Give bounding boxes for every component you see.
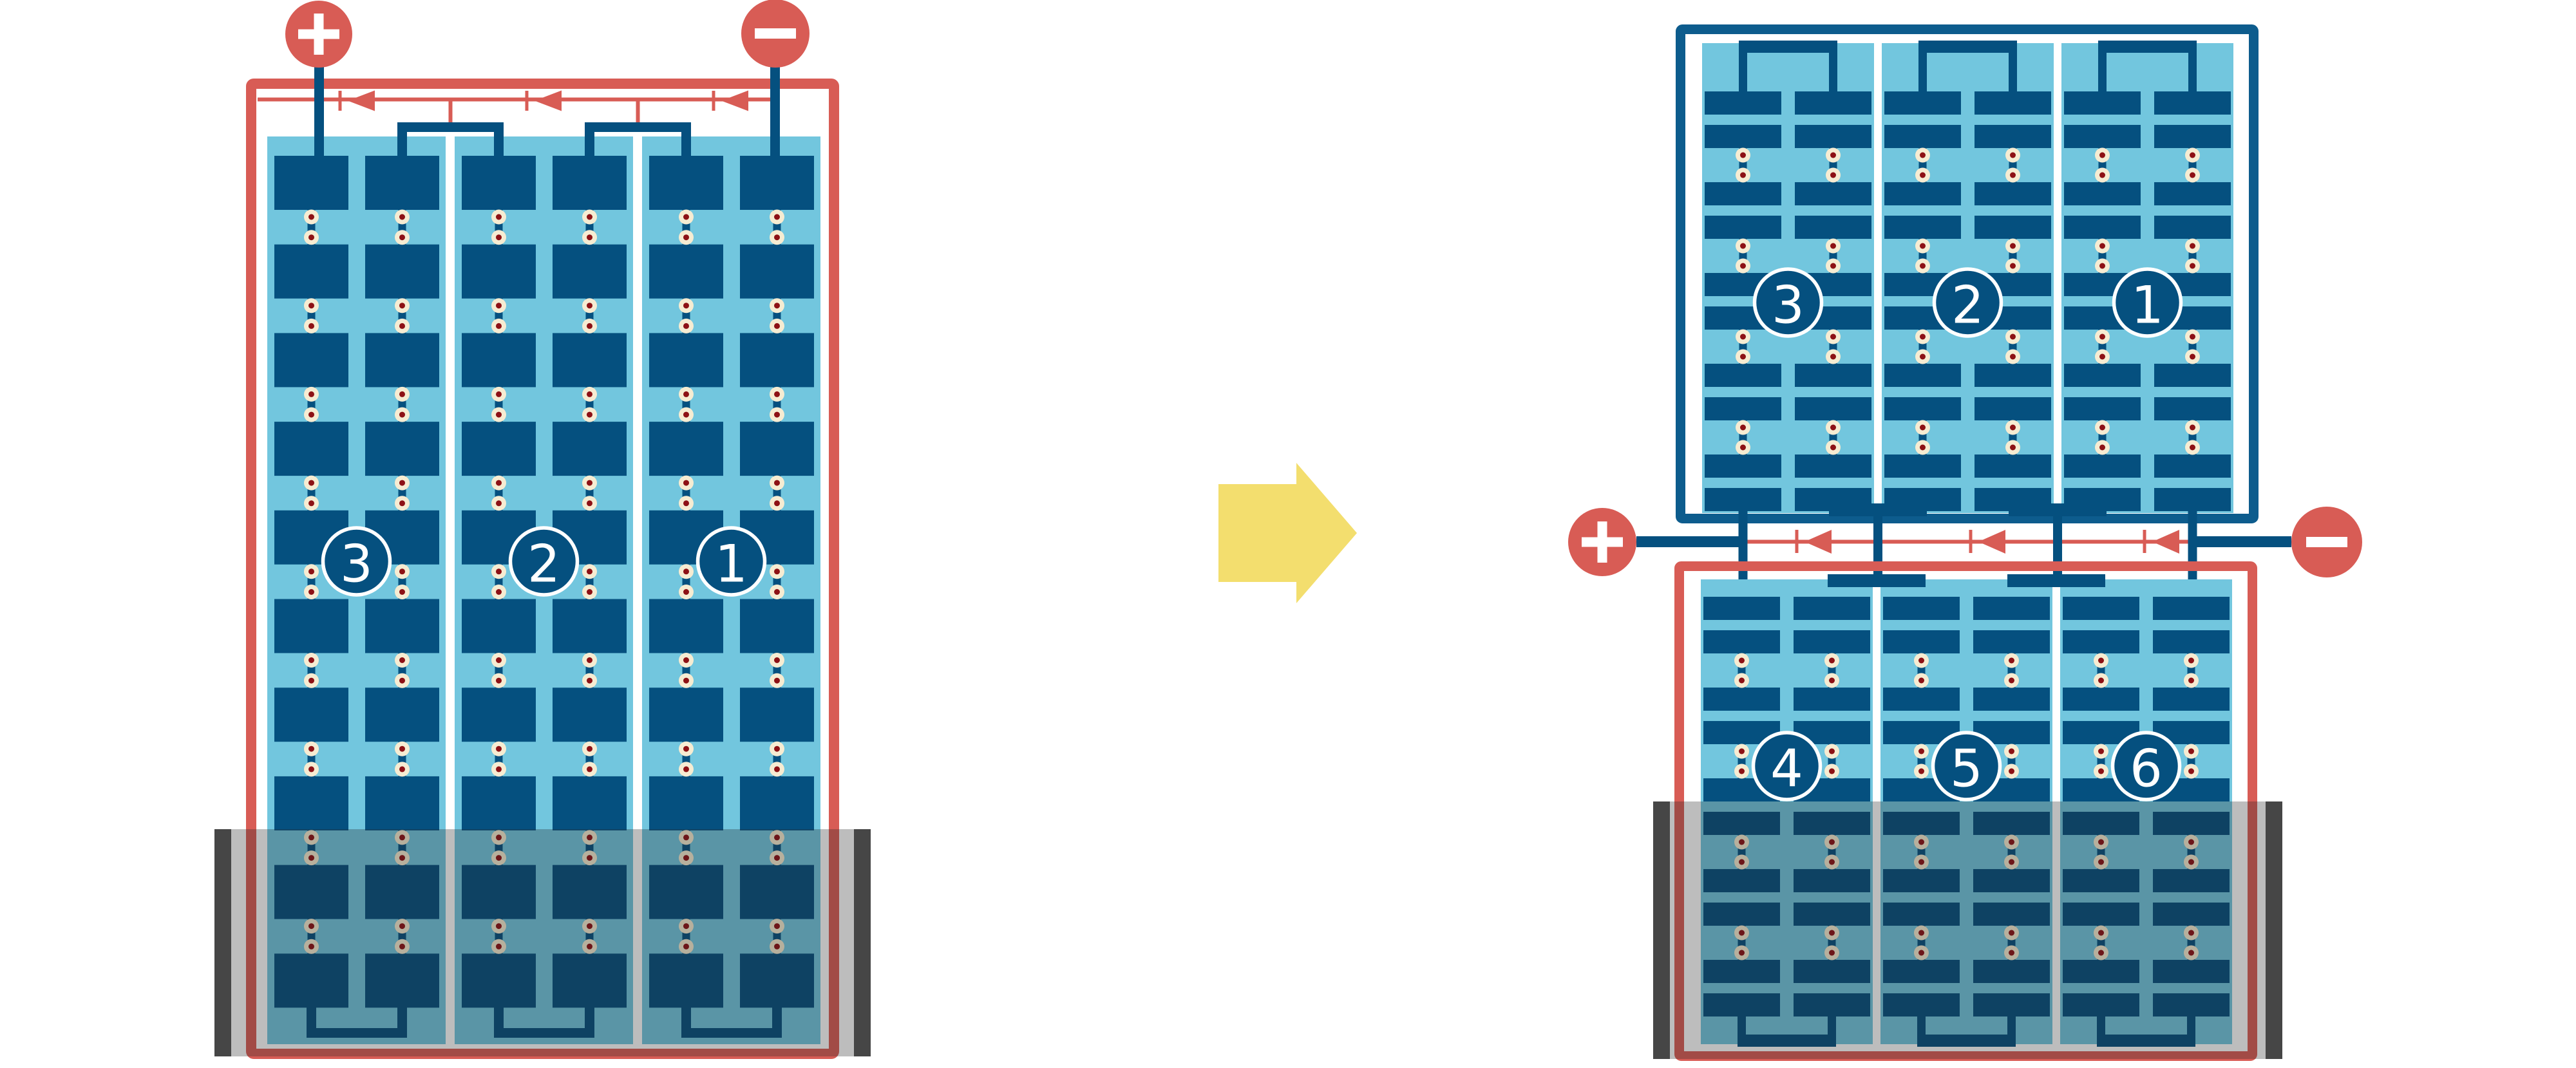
solar-half-cell	[1794, 688, 1870, 711]
cell-dot-center	[1920, 153, 1926, 158]
solar-half-cell	[2153, 630, 2230, 653]
cell-dot-center	[1739, 769, 1745, 774]
cell-dot-center	[1740, 263, 1746, 269]
cell-dot-center	[308, 500, 314, 506]
terminal-stem	[314, 64, 324, 156]
cell-dot-center	[1920, 354, 1926, 360]
solar-half-cell	[1794, 630, 1870, 653]
string-label: 5	[1950, 739, 1983, 799]
string-label: 1	[715, 534, 748, 594]
cell-dot-center	[774, 214, 780, 220]
cell-dot-center	[1829, 769, 1835, 774]
cell-dot-center	[308, 303, 314, 308]
cell-dot-center	[2099, 263, 2105, 269]
cell-dot-center	[399, 678, 405, 684]
solar-cell	[649, 156, 723, 210]
cell-dot-center	[2010, 425, 2016, 431]
solar-half-cell	[1705, 216, 1781, 239]
cell-dot-center	[1830, 425, 1836, 431]
solar-cell	[365, 422, 439, 476]
cell-dot-center	[2190, 425, 2195, 431]
cell-dot-center	[587, 303, 592, 308]
cell-dot-center	[683, 589, 689, 595]
cell-dot-center	[774, 746, 780, 752]
cell-dot-center	[2009, 658, 2014, 664]
cell-dot-center	[683, 678, 689, 684]
cell-dot-center	[774, 766, 780, 772]
cell-dot-center	[683, 391, 689, 397]
interconnect-leg	[1739, 53, 1747, 91]
solar-half-cell	[1795, 364, 1871, 387]
cell-dot-center	[399, 303, 405, 308]
terminal-negative	[2291, 507, 2362, 577]
cell-dot-center	[2098, 658, 2104, 664]
cell-dot-center	[1918, 658, 1924, 664]
solar-cell	[274, 599, 348, 653]
right-top-module: 321	[1681, 30, 2254, 519]
cell-dot-center	[399, 500, 405, 506]
string-label: 2	[1951, 276, 1984, 335]
cell-dot-center	[308, 480, 314, 486]
string-number-badge: 3	[1755, 269, 1822, 336]
interconnect-leg	[2009, 53, 2017, 91]
cell-dot-center	[587, 480, 592, 486]
string-number-badge: 2	[1935, 269, 2002, 336]
string-number-badge: 4	[1754, 733, 1821, 800]
interconnect-bar	[2098, 41, 2197, 53]
cell-dot-center	[1830, 445, 1836, 451]
solar-half-cell	[1975, 182, 2051, 205]
cell-dot-center	[308, 412, 314, 418]
cell-dot-center	[1920, 425, 1926, 431]
cell-dot-center	[308, 766, 314, 772]
solar-half-cell	[2064, 125, 2141, 148]
cell-dot-center	[1829, 749, 1835, 754]
diode-cathode-bar	[1969, 530, 1973, 553]
interconnect-bar	[1918, 41, 2017, 53]
solar-cell	[274, 776, 348, 830]
interconnect-bar	[2007, 574, 2105, 587]
cell-dot-center	[308, 657, 314, 663]
cell-dot-center	[774, 412, 780, 418]
solar-cell	[649, 245, 723, 299]
cell-dot-center	[399, 589, 405, 595]
cell-dot-center	[2190, 153, 2195, 158]
string-number-badge: 6	[2113, 733, 2180, 800]
solar-half-cell	[2063, 597, 2139, 620]
cell-dot-center	[308, 746, 314, 752]
solar-cell	[462, 422, 536, 476]
cell-dot-center	[496, 412, 502, 418]
cell-dot-center	[774, 234, 780, 240]
solar-half-cell	[1883, 688, 1960, 711]
solar-half-cell	[1975, 364, 2051, 387]
solar-half-cell	[1703, 630, 1780, 653]
interconnect-leg	[494, 132, 504, 156]
cell-dot-center	[587, 214, 592, 220]
cell-dot-center	[2188, 678, 2194, 684]
solar-half-cell	[2154, 125, 2231, 148]
solar-half-cell	[1975, 397, 2051, 420]
cell-dot-center	[2098, 749, 2104, 754]
solar-half-cell	[1975, 216, 2051, 239]
cell-dot-center	[1918, 769, 1924, 774]
solar-cell	[553, 688, 627, 742]
solar-cell	[649, 688, 723, 742]
cell-dot-center	[1740, 354, 1746, 360]
cell-dot-center	[2190, 334, 2195, 340]
string-label: 3	[340, 534, 373, 594]
minus-icon	[755, 28, 796, 39]
cell-dot-center	[774, 589, 780, 595]
cell-dot-center	[2098, 769, 2104, 774]
solar-cell	[274, 688, 348, 742]
solar-half-cell	[1975, 125, 2051, 148]
cell-dot-center	[683, 303, 689, 308]
solar-cell	[365, 776, 439, 830]
interconnect-bar	[1739, 41, 1837, 53]
solar-cell	[462, 333, 536, 387]
solar-cell	[365, 599, 439, 653]
cell-dot-center	[1920, 445, 1926, 451]
cell-dot-center	[496, 323, 502, 329]
cell-dot-center	[683, 480, 689, 486]
solar-half-cell	[1975, 454, 2051, 478]
string-number-badge: 3	[323, 528, 390, 595]
solar-half-cell	[1884, 397, 1961, 420]
solar-cell	[740, 333, 814, 387]
solar-half-cell	[1973, 630, 2050, 653]
solar-cell	[740, 599, 814, 653]
cell-dot-center	[587, 568, 592, 574]
cell-dot-center	[1739, 678, 1745, 684]
cell-dot-center	[496, 480, 502, 486]
string-label: 1	[2131, 276, 2164, 335]
solar-half-cell	[1883, 630, 1960, 653]
cell-dot-center	[1739, 658, 1745, 664]
cell-dot-center	[308, 391, 314, 397]
solar-cell	[740, 776, 814, 830]
string-label: 6	[2130, 739, 2163, 799]
diode-triangle	[535, 91, 562, 111]
cell-dot-center	[496, 589, 502, 595]
cell-dot-center	[1740, 445, 1746, 451]
cell-dot-center	[2190, 354, 2195, 360]
solar-half-cell	[1973, 688, 2050, 711]
shade-overlay-left	[214, 829, 871, 1056]
solar-cell	[462, 776, 536, 830]
solar-cell	[740, 156, 814, 210]
cell-dot-center	[496, 214, 502, 220]
solar-half-cell	[1795, 216, 1871, 239]
cell-dot-center	[2099, 354, 2105, 360]
solar-half-cell	[1795, 125, 1871, 148]
solar-half-cell	[1705, 91, 1781, 115]
diode-cathode-bar	[1795, 530, 1799, 553]
cell-dot-center	[774, 391, 780, 397]
solar-half-cell	[1703, 597, 1780, 620]
cell-dot-center	[683, 323, 689, 329]
string-number-badge: 1	[2114, 269, 2181, 336]
cell-dot-center	[1830, 243, 1836, 249]
cell-dot-center	[1740, 243, 1746, 249]
cell-dot-center	[1918, 678, 1924, 684]
solar-half-cell	[1884, 91, 1961, 115]
cell-dot-center	[1830, 173, 1836, 178]
cell-dot-center	[1830, 263, 1836, 269]
cell-dot-center	[774, 480, 780, 486]
cell-dot-center	[683, 412, 689, 418]
plus-bar-v	[314, 14, 324, 55]
shade-overlay-right	[1653, 801, 2282, 1059]
solar-half-cell	[2064, 364, 2141, 387]
cell-dot-center	[2190, 173, 2195, 178]
cell-dot-center	[399, 412, 405, 418]
solar-half-cell	[1705, 182, 1781, 205]
solar-cell	[649, 599, 723, 653]
diode-cathode-bar	[712, 91, 715, 111]
cell-dot-center	[587, 234, 592, 240]
diode-cathode-bar	[339, 91, 342, 111]
solar-cell	[649, 422, 723, 476]
solar-half-cell	[2154, 454, 2231, 478]
solar-half-cell	[2153, 688, 2230, 711]
cell-dot-center	[496, 766, 502, 772]
shade-overlay	[214, 829, 871, 1056]
interconnect-leg	[1918, 53, 1927, 91]
cell-dot-center	[399, 657, 405, 663]
solar-cell	[740, 688, 814, 742]
cell-dot-center	[587, 412, 592, 418]
diode-triangle	[348, 91, 375, 111]
cell-dot-center	[1920, 334, 1926, 340]
cell-dot-center	[1740, 173, 1746, 178]
cell-dot-center	[1740, 153, 1746, 158]
cell-dot-center	[496, 746, 502, 752]
cell-dot-center	[2010, 263, 2016, 269]
solar-half-cell	[1705, 125, 1781, 148]
cell-dot-center	[2010, 445, 2016, 451]
minus-bar	[755, 28, 796, 39]
cell-dot-center	[587, 500, 592, 506]
solar-cell	[274, 422, 348, 476]
solar-half-cell	[1973, 597, 2050, 620]
cell-dot-center	[496, 391, 502, 397]
cell-dot-center	[2099, 153, 2105, 158]
string-label: 3	[1772, 276, 1804, 335]
cell-dot-center	[2188, 769, 2194, 774]
diode-tap	[636, 100, 640, 123]
cell-dot-center	[587, 391, 592, 397]
cell-dot-center	[2188, 749, 2194, 754]
string-label: 4	[1770, 739, 1803, 799]
solar-cell	[365, 333, 439, 387]
solar-half-cell	[1795, 397, 1871, 420]
cell-dot-center	[308, 323, 314, 329]
solar-half-cell	[1794, 597, 1870, 620]
solar-cell	[553, 599, 627, 653]
solar-cell	[553, 156, 627, 210]
interconnect-leg	[681, 132, 691, 156]
solar-half-cell	[1795, 91, 1871, 115]
minus-icon	[2306, 537, 2347, 547]
solar-half-cell	[2063, 630, 2139, 653]
solar-cell	[649, 333, 723, 387]
terminal-positive	[1568, 508, 1636, 576]
solar-cell	[553, 422, 627, 476]
solar-half-cell	[1883, 597, 1960, 620]
cell-dot-center	[399, 391, 405, 397]
interconnect-leg	[397, 132, 407, 156]
cell-dot-center	[1740, 425, 1746, 431]
cell-dot-center	[496, 568, 502, 574]
interconnect-leg	[2188, 53, 2197, 91]
terminal-positive	[285, 1, 352, 68]
interconnect-leg	[1829, 53, 1837, 91]
solar-cell	[462, 156, 536, 210]
solar-half-cell	[2154, 182, 2231, 205]
cell-dot-center	[1920, 243, 1926, 249]
cell-dot-center	[2099, 425, 2105, 431]
cell-dot-center	[308, 214, 314, 220]
solar-cell	[462, 245, 536, 299]
interconnect-bar	[1828, 574, 1926, 587]
diode-triangle	[1804, 530, 1832, 554]
solar-half-cell	[1795, 182, 1871, 205]
solar-half-cell	[2064, 216, 2141, 239]
string-number-badge: 5	[1933, 733, 2000, 800]
cell-dot-center	[308, 234, 314, 240]
terminal-stem	[770, 64, 780, 156]
cell-dot-center	[2190, 243, 2195, 249]
solar-cell	[462, 688, 536, 742]
cell-dot-center	[683, 746, 689, 752]
cell-dot-center	[587, 323, 592, 329]
solar-half-cell	[2064, 182, 2141, 205]
cell-dot-center	[1740, 334, 1746, 340]
solar-cell	[274, 245, 348, 299]
diode-cathode-bar	[2143, 530, 2146, 553]
cell-dot-center	[683, 568, 689, 574]
string-number-badge: 1	[698, 528, 765, 595]
diagram-svg: 321 321 456	[0, 0, 2576, 1068]
cell-dot-center	[587, 678, 592, 684]
cell-dot-center	[308, 678, 314, 684]
solar-half-cell	[2064, 454, 2141, 478]
solar-half-cell	[2154, 364, 2231, 387]
cell-dot-center	[2009, 749, 2014, 754]
solar-cell	[365, 688, 439, 742]
string-label: 2	[527, 534, 560, 594]
cell-dot-center	[2190, 263, 2195, 269]
cell-dot-center	[774, 303, 780, 308]
cell-dot-center	[1830, 153, 1836, 158]
plus-bar-v	[1598, 521, 1607, 563]
solar-cell	[274, 333, 348, 387]
cell-dot-center	[774, 657, 780, 663]
cell-dot-center	[496, 678, 502, 684]
arrow-right-icon	[1218, 463, 1357, 603]
solar-half-cell	[1705, 364, 1781, 387]
solar-half-cell	[2063, 688, 2139, 711]
solar-half-cell	[2154, 397, 2231, 420]
solar-half-cell	[1884, 216, 1961, 239]
interconnect-bar	[585, 122, 691, 132]
cell-dot-center	[587, 657, 592, 663]
solar-cell	[649, 776, 723, 830]
cell-dot-center	[496, 303, 502, 308]
solar-half-cell	[1795, 454, 1871, 478]
solar-half-cell	[1884, 125, 1961, 148]
cell-dot-center	[399, 766, 405, 772]
cell-dot-center	[496, 500, 502, 506]
cell-dot-center	[683, 214, 689, 220]
interconnect-bar	[397, 122, 504, 132]
minus-bar	[2306, 537, 2347, 547]
cell-dot-center	[2188, 658, 2194, 664]
cell-dot-center	[496, 234, 502, 240]
cell-dot-center	[2010, 173, 2016, 178]
cell-dot-center	[2190, 445, 2195, 451]
solar-half-cell	[2153, 597, 2230, 620]
cell-dot-center	[683, 766, 689, 772]
cell-dot-center	[2010, 334, 2016, 340]
cell-dot-center	[2099, 243, 2105, 249]
solar-cell	[740, 422, 814, 476]
cell-dot-center	[399, 234, 405, 240]
cell-dot-center	[774, 323, 780, 329]
cell-dot-center	[587, 766, 592, 772]
shade-overlay	[1653, 801, 2282, 1059]
cell-dot-center	[399, 568, 405, 574]
solar-half-cell	[2064, 397, 2141, 420]
cell-dot-center	[683, 500, 689, 506]
cell-dot-center	[683, 657, 689, 663]
solar-half-cell	[1705, 454, 1781, 478]
cell-dot-center	[399, 214, 405, 220]
solar-cell	[553, 245, 627, 299]
cell-dot-center	[496, 657, 502, 663]
cell-dot-center	[774, 568, 780, 574]
cell-dot-center	[1829, 678, 1835, 684]
cell-dot-center	[399, 323, 405, 329]
interconnect-leg	[2098, 53, 2107, 91]
solar-half-cell	[1705, 397, 1781, 420]
solar-half-cell	[1884, 182, 1961, 205]
half-cut-module-diagram: 321 321 456	[0, 0, 2576, 1068]
cell-dot-center	[2098, 678, 2104, 684]
cell-dot-center	[587, 746, 592, 752]
diode-cathode-bar	[526, 91, 529, 111]
diode-triangle	[2152, 530, 2179, 554]
solar-cell	[365, 156, 439, 210]
terminal-lead	[1636, 536, 1739, 547]
cell-dot-center	[308, 589, 314, 595]
cell-dot-center	[1830, 354, 1836, 360]
cell-dot-center	[308, 568, 314, 574]
cell-dot-center	[1918, 749, 1924, 754]
cell-dot-center	[774, 500, 780, 506]
cell-dot-center	[1830, 334, 1836, 340]
diode-tap	[449, 100, 453, 123]
solar-cell	[740, 245, 814, 299]
solar-half-cell	[2154, 216, 2231, 239]
cell-dot-center	[774, 678, 780, 684]
solar-cell	[365, 245, 439, 299]
cell-dot-center	[2099, 445, 2105, 451]
solar-half-cell	[1703, 688, 1780, 711]
solar-cell	[553, 333, 627, 387]
